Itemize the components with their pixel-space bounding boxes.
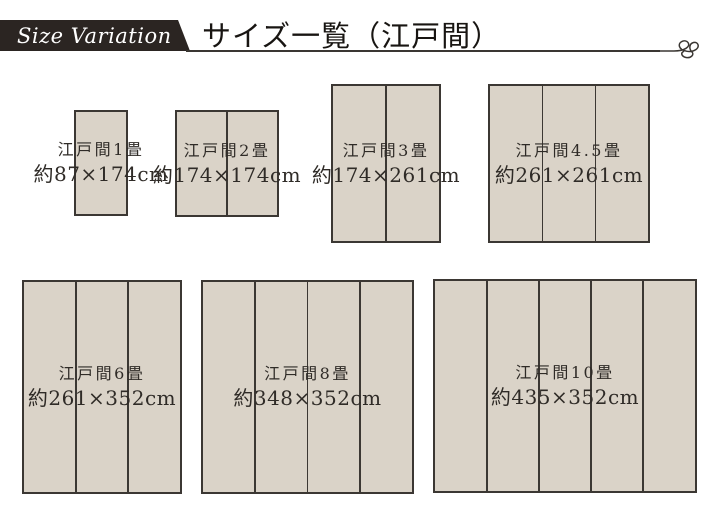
page-title: サイズ一覧（江戸間） [202, 13, 501, 55]
mat-diagram: 江戸間1畳約87×174cm [74, 110, 128, 216]
ribbon-label: Size Variation [0, 24, 172, 48]
mat-name: 江戸間6畳 [28, 363, 176, 385]
mat-name: 江戸間3畳 [312, 140, 460, 162]
mat-panel-divider [486, 281, 488, 491]
mat-diagram: 江戸間3畳約174×261cm [331, 84, 441, 243]
mat-diagram: 江戸間4.5畳約261×261cm [488, 84, 650, 243]
mat-label: 江戸間10畳約435×352cm [491, 362, 639, 410]
mat-size: 約435×352cm [491, 384, 639, 410]
mat-label: 江戸間3畳約174×261cm [312, 140, 460, 188]
mat-name: 江戸間10畳 [491, 362, 639, 384]
mat-panel-divider [642, 281, 644, 491]
mat-diagram: 江戸間2畳約174×174cm [175, 110, 279, 217]
mat-size: 約348×352cm [233, 385, 381, 411]
header-underline [186, 50, 660, 52]
mat-name: 江戸間8畳 [233, 363, 381, 385]
mat-size: 約87×174cm [33, 161, 168, 187]
ribbon-banner: Size Variation [0, 20, 190, 51]
mat-size: 約261×261cm [495, 162, 643, 188]
mat-label: 江戸間8畳約348×352cm [233, 363, 381, 411]
mat-size: 約174×174cm [153, 162, 301, 188]
mat-name: 江戸間2畳 [153, 140, 301, 162]
mat-label: 江戸間6畳約261×352cm [28, 363, 176, 411]
mat-diagram: 江戸間8畳約348×352cm [201, 280, 414, 494]
mat-diagram: 江戸間6畳約261×352cm [22, 280, 182, 494]
size-variation-panel: Size Variation サイズ一覧（江戸間） 江戸間1畳約87×174cm… [0, 0, 720, 522]
mat-label: 江戸間1畳約87×174cm [33, 139, 168, 187]
mat-label: 江戸間4.5畳約261×261cm [495, 140, 643, 188]
mat-label: 江戸間2畳約174×174cm [153, 140, 301, 188]
mat-size: 約174×261cm [312, 162, 460, 188]
mat-diagram: 江戸間10畳約435×352cm [433, 279, 697, 493]
calligraphic-flourish-icon [644, 36, 706, 66]
mat-name: 江戸間4.5畳 [495, 140, 643, 162]
mat-name: 江戸間1畳 [33, 139, 168, 161]
mat-size: 約261×352cm [28, 385, 176, 411]
